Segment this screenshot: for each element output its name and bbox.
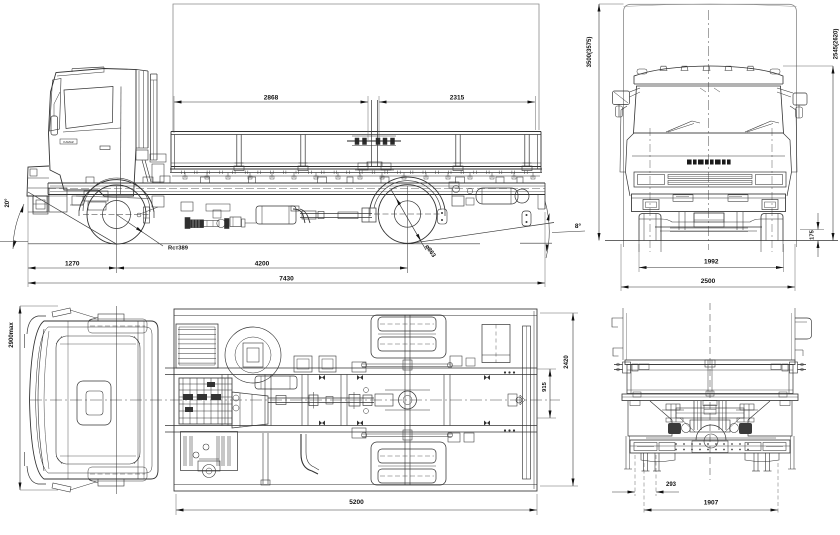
svg-text:Rст389: Rст389 [168, 246, 189, 252]
svg-text:2500: 2500 [701, 278, 716, 285]
svg-text:2868: 2868 [264, 95, 279, 102]
svg-text:293: 293 [666, 482, 677, 488]
svg-text:915: 915 [542, 381, 548, 391]
svg-text:20°: 20° [5, 198, 11, 208]
svg-text:KAMAZ: KAMAZ [63, 140, 74, 144]
svg-text:8°: 8° [575, 222, 582, 230]
svg-text:2420: 2420 [564, 355, 570, 369]
svg-text:3500(3575): 3500(3575) [587, 37, 593, 68]
svg-text:2900max: 2900max [9, 322, 15, 348]
svg-text:1270: 1270 [65, 261, 80, 268]
svg-text:⌀863: ⌀863 [423, 244, 436, 259]
svg-text:2315: 2315 [450, 95, 465, 102]
svg-text:2545(2620): 2545(2620) [834, 29, 840, 60]
svg-text:1907: 1907 [704, 500, 719, 507]
svg-text:175: 175 [810, 229, 816, 239]
svg-text:5200: 5200 [349, 499, 364, 506]
svg-text:1992: 1992 [704, 259, 719, 266]
svg-text:7430: 7430 [279, 276, 294, 283]
svg-text:4200: 4200 [255, 261, 270, 268]
